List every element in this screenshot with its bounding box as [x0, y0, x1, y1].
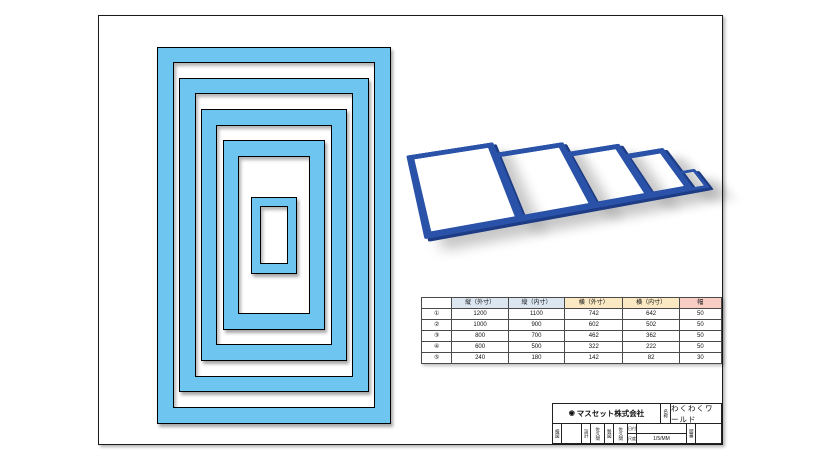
date-value	[637, 424, 686, 434]
table-cell: 742	[565, 309, 623, 320]
title-block: ◉ マスセット株式会社 名称 わくわくワールド 検図 設計	[552, 403, 722, 444]
date-label: 日付	[628, 424, 636, 434]
drawing-canvas: 縦（外寸）縦（内寸）横（外寸）横（内寸）幅 ①1200110074264250②…	[0, 0, 819, 461]
check-label: 検図	[555, 429, 560, 438]
table-cell: 1100	[508, 309, 564, 320]
table-cell: 222	[623, 342, 679, 353]
table-header-3: 横（外寸）	[565, 298, 623, 309]
draft-label-cell: 製図	[604, 424, 613, 443]
dimension-table-head: 縦（外寸）縦（内寸）横（外寸）横（内寸）幅	[422, 298, 722, 309]
table-row: ③80070046236250	[422, 331, 722, 342]
table-cell: 50	[679, 331, 721, 342]
table-cell: 142	[565, 353, 623, 364]
date-scale-label-cell: 日付 尺度	[627, 424, 636, 443]
number-label-cell: 図番	[686, 424, 695, 443]
table-cell: ①	[422, 309, 452, 320]
number-value-cell	[695, 424, 721, 443]
title-block-top-row: ◉ マスセット株式会社 名称 わくわくワールド	[553, 404, 721, 423]
table-cell: 50	[679, 309, 721, 320]
table-cell: 50	[679, 320, 721, 331]
dimension-table-body: ①1200110074264250②100090060250250③800700…	[422, 309, 722, 364]
table-cell: 30	[679, 353, 721, 364]
company-name: マスセット株式会社	[577, 408, 645, 419]
drawing-title: わくわくワールド	[671, 404, 721, 423]
table-cell: 322	[565, 342, 623, 353]
table-row: ②100090060250250	[422, 320, 722, 331]
drafter-name: 佐久間	[618, 427, 623, 441]
designer-cell: 佐久間	[590, 424, 604, 443]
table-cell: 700	[508, 331, 564, 342]
table-cell: ②	[422, 320, 452, 331]
frames-3d-view	[421, 76, 721, 226]
scale-label: 尺度	[628, 434, 636, 443]
table-row: ①1200110074264250	[422, 309, 722, 320]
table-cell: 462	[565, 331, 623, 342]
table-cell: 600	[452, 342, 508, 353]
check-value-cell	[561, 424, 581, 443]
table-cell: 50	[679, 342, 721, 353]
company-logo-icon: ◉	[569, 410, 575, 417]
drawing-title-cell: わくわくワールド	[670, 404, 721, 423]
table-cell: 800	[452, 331, 508, 342]
drafter-cell: 佐久間	[613, 424, 627, 443]
name-label-cell: 名称	[660, 404, 670, 423]
table-cell: 240	[452, 353, 508, 364]
scale-value: 1/5/MM	[637, 434, 686, 443]
draft-label: 製図	[607, 429, 612, 438]
table-cell: ③	[422, 331, 452, 342]
company-cell: ◉ マスセット株式会社	[553, 404, 660, 423]
table-cell: 500	[508, 342, 564, 353]
drawing-sheet: 縦（外寸）縦（内寸）横（外寸）横（内寸）幅 ①1200110074264250②…	[98, 15, 723, 445]
table-header-1: 縦（外寸）	[452, 298, 508, 309]
table-row: ④60050032222250	[422, 342, 722, 353]
table-cell: 642	[623, 309, 679, 320]
table-cell: 1000	[452, 320, 508, 331]
frame-2d-5	[251, 197, 297, 274]
table-header-5: 幅	[679, 298, 721, 309]
table-cell: ④	[422, 342, 452, 353]
number-label: 図番	[689, 429, 694, 438]
table-cell: 1200	[452, 309, 508, 320]
table-header-2: 縦（内寸）	[508, 298, 564, 309]
table-cell: 502	[623, 320, 679, 331]
check-label-cell: 検図	[553, 424, 561, 443]
date-scale-value-cell: 1/5/MM	[636, 424, 686, 443]
dimension-table: 縦（外寸）縦（内寸）横（外寸）横（内寸）幅 ①1200110074264250②…	[421, 297, 722, 364]
designer-name: 佐久間	[595, 427, 600, 441]
table-cell: 900	[508, 320, 564, 331]
table-cell: 362	[623, 331, 679, 342]
name-label: 名称	[663, 409, 668, 418]
frames-3d-ground	[405, 119, 704, 240]
table-cell: 180	[508, 353, 564, 364]
design-label-cell: 設計	[581, 424, 590, 443]
table-row: ⑤2401801428230	[422, 353, 722, 364]
table-cell: 602	[565, 320, 623, 331]
table-cell: 82	[623, 353, 679, 364]
table-cell: ⑤	[422, 353, 452, 364]
title-block-bottom-row: 検図 設計 佐久間 製図 佐久間 日付 尺度	[553, 423, 721, 443]
design-label: 設計	[584, 429, 589, 438]
frame-2d-hole-5	[260, 206, 288, 264]
table-header-4: 横（内寸）	[623, 298, 679, 309]
table-corner-cell	[422, 298, 452, 309]
